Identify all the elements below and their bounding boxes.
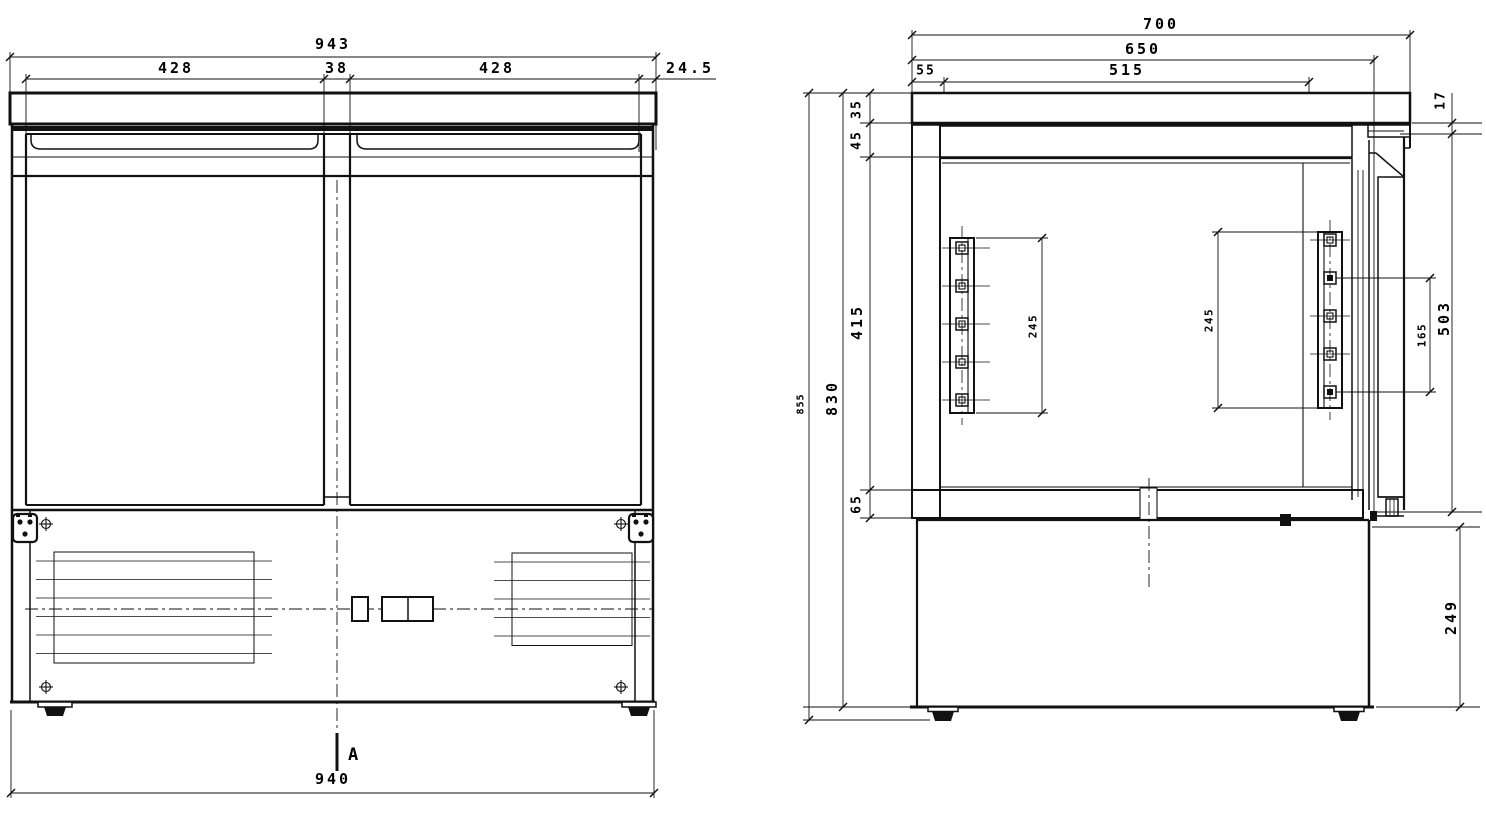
countertop-front (10, 93, 656, 124)
dim-right-rack-height: 245 (1203, 308, 1216, 332)
bottom-insulation-band (912, 490, 1363, 518)
dim-counter-depth: 650 (1125, 40, 1161, 58)
dim-bottom-insulation: 65 (850, 494, 865, 514)
handle-rail (12, 126, 653, 131)
countertop-section (912, 93, 1410, 123)
back-wall-insulation (912, 123, 940, 518)
dim-overall-depth: 700 (1143, 15, 1179, 33)
dim-overall-height: 855 (796, 393, 807, 414)
drawing-canvas: A 943 428 38 428 24.5 940 (0, 0, 1486, 816)
right-door (350, 134, 641, 505)
dim-overall-width: 943 (315, 35, 351, 53)
top-insulation (940, 126, 1352, 157)
right-door-handle-trough (357, 134, 639, 149)
center-mullion (324, 180, 350, 728)
shelf-rack-left (942, 226, 990, 425)
control-cutouts (352, 597, 433, 621)
dim-left-door-width: 428 (158, 59, 194, 77)
foot-front-left (38, 702, 72, 716)
hinge-pivot (1370, 511, 1377, 521)
hinge-plate-top-left (13, 514, 37, 542)
lower-compartment-section (910, 514, 1374, 707)
panel-screws (39, 517, 628, 694)
left-door (26, 134, 324, 505)
foot-section-right (1334, 707, 1364, 721)
dim-body-height: 830 (823, 380, 841, 416)
dim-door-height: 503 (1435, 300, 1453, 336)
dim-mullion-width: 38 (325, 59, 349, 77)
section-view-dimensions: 700 650 55 515 35 45 415 65 830 855 (796, 15, 1483, 724)
dim-side-overhang: 24.5 (666, 59, 714, 77)
section-mark-label: A (348, 745, 358, 765)
door-section (1352, 123, 1410, 521)
door-bottom-hinge (1386, 499, 1398, 516)
dim-left-rack-height: 245 (1027, 314, 1040, 338)
dim-base-width: 940 (315, 770, 351, 788)
dim-interior-height: 415 (848, 304, 866, 340)
dim-top-lip: 17 (1434, 90, 1449, 110)
foot-front-right (622, 702, 656, 716)
hinge-plate-top-right (629, 514, 653, 542)
lower-compartment (10, 510, 655, 702)
dim-top-insulation: 45 (850, 130, 865, 150)
dim-base-height: 249 (1442, 599, 1460, 635)
dim-right-door-width: 428 (479, 59, 515, 77)
section-mark: A (337, 733, 358, 771)
section-view: 700 650 55 515 35 45 415 65 830 855 (796, 15, 1483, 724)
dim-rack-hole-span: 165 (1416, 323, 1429, 347)
technical-drawing: A 943 428 38 428 24.5 940 (0, 0, 1486, 816)
latch-block (1280, 514, 1291, 526)
vent-grille-right (494, 553, 650, 646)
door-insulation (1378, 177, 1404, 497)
vent-grille-left (36, 552, 272, 663)
front-view: A 943 428 38 428 24.5 940 (6, 35, 716, 798)
dim-counter-thickness: 35 (850, 99, 865, 119)
dim-interior-depth: 515 (1109, 61, 1145, 79)
switch-cutout (352, 597, 368, 621)
dim-back-gap: 55 (916, 64, 936, 79)
shelf-rack-right (1310, 220, 1350, 420)
foot-section-left (928, 707, 958, 721)
left-door-handle-trough (31, 134, 318, 149)
